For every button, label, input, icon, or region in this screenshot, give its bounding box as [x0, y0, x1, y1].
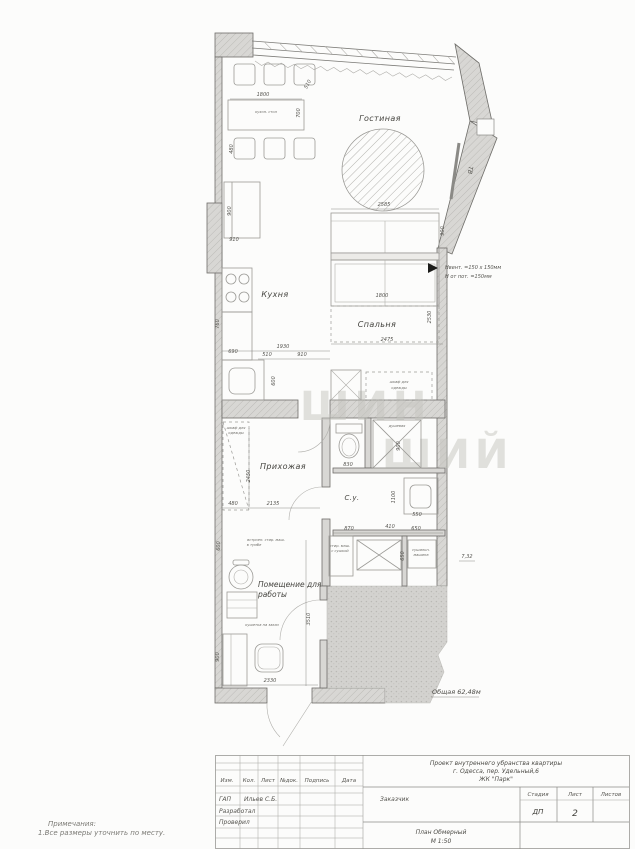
notes-title: Примечания: [48, 820, 96, 828]
svg-text:900: 900 [396, 441, 402, 451]
doc-name-2: М 1:50 [431, 838, 452, 845]
svg-text:1800: 1800 [257, 92, 270, 98]
sheet-value: 2 [572, 809, 578, 819]
wall-top-right-upper [455, 44, 493, 126]
door-arc [280, 600, 320, 640]
customer-label: Заказчик [380, 796, 409, 803]
wall-left-pier [207, 203, 222, 273]
svg-text:Кол.: Кол. [243, 778, 256, 784]
svg-text:760: 760 [215, 319, 221, 329]
workroom-label-2: работы [257, 590, 287, 599]
door-arc [289, 487, 322, 520]
svg-text:410: 410 [385, 524, 395, 530]
svg-text:Изм.: Изм. [221, 778, 234, 784]
svg-text:кушетка на заказ: кушетка на заказ [245, 623, 279, 627]
svg-text:900: 900 [440, 226, 446, 236]
svg-text:480: 480 [228, 501, 238, 507]
vent-arrow-icon [428, 263, 438, 273]
svg-text:650: 650 [411, 526, 421, 532]
svg-text:2330: 2330 [264, 678, 277, 684]
vanity-icon [404, 478, 438, 514]
svg-text:870: 870 [344, 526, 354, 532]
washbasin-icon [410, 485, 431, 508]
svg-text:1930: 1930 [277, 344, 290, 350]
svg-text:830: 830 [343, 462, 353, 468]
dining-table-icon [228, 100, 304, 130]
svg-text:1800: 1800 [376, 293, 389, 299]
round-rug-icon [342, 129, 424, 211]
sheet-label: Лист [567, 792, 583, 798]
doc-name-1: План Обмерный [416, 829, 467, 836]
entry-door-arc [267, 703, 280, 737]
svg-text:сушильн.: сушильн. [412, 548, 430, 552]
bedroom: Спальня [331, 260, 439, 400]
sign-table-rows: ГАПИльев С.Б.РазработалПроверил [219, 796, 277, 826]
wall-top-left [215, 33, 253, 57]
notes-item: 1.Все размеры уточнить по месту. [38, 829, 165, 837]
desk-icon [227, 592, 257, 618]
svg-text:ГАП: ГАП [219, 796, 231, 803]
notes: Примечания: 1.Все размеры уточнить по ме… [38, 820, 165, 837]
svg-text:Ильев С.Б.: Ильев С.Б. [244, 796, 277, 803]
svg-text:с сушкой: с сушкой [331, 549, 349, 553]
sofa-console [331, 253, 439, 260]
svg-text:510: 510 [262, 352, 272, 358]
stool-icon [294, 138, 315, 159]
svg-text:690: 690 [228, 349, 238, 355]
svg-text:в тумбе: в тумбе [247, 543, 262, 547]
svg-text:кухон. стол: кухон. стол [255, 110, 278, 114]
svg-text:машина: машина [413, 553, 428, 557]
svg-text:910: 910 [229, 237, 239, 243]
drawing-sheet: ШИН ШИЙ Гостиная ТВ Спальня Кухня [0, 0, 635, 849]
partition-work-b [320, 640, 327, 688]
stool-icon [264, 138, 285, 159]
svg-text:Дата: Дата [341, 778, 357, 784]
entry-door-leaf [283, 701, 312, 746]
svg-text:600: 600 [216, 541, 222, 551]
svg-text:3510: 3510 [306, 613, 312, 626]
cabinet-icon [223, 634, 247, 686]
project-title-1: Проект внутреннего убранства квартиры [430, 760, 562, 767]
svg-text:встроен. стир. маш.: встроен. стир. маш. [247, 538, 285, 542]
watermark-2: ШИЙ [382, 430, 513, 478]
svg-text:№док.: №док. [279, 778, 298, 784]
svg-text:2475: 2475 [381, 337, 394, 343]
wall-top-right-slant [438, 121, 497, 254]
svg-text:стир. маш.: стир. маш. [330, 544, 350, 548]
svg-text:Подпись: Подпись [305, 778, 330, 784]
wall-mid-left [222, 400, 298, 418]
svg-text:480: 480 [229, 144, 235, 154]
tv-label: ТВ [466, 166, 474, 175]
svg-text:Проверил: Проверил [219, 819, 250, 826]
wall-bottom-left [215, 688, 267, 703]
living-label: Гостиная [359, 114, 401, 123]
window-band [252, 41, 456, 81]
svg-text:шкаф для: шкаф для [227, 426, 247, 430]
floor-plan: ШИН ШИЙ Гостиная ТВ Спальня Кухня [0, 0, 635, 849]
svg-text:2585: 2585 [378, 202, 391, 208]
vent-note-1: Нвент. =150 х 150мм [445, 265, 501, 271]
svg-text:2450: 2450 [246, 470, 252, 483]
vent-note-2: Н от пот. =150мм [445, 274, 492, 280]
chair-icon [229, 565, 253, 589]
sink-icon [229, 368, 255, 394]
cooktop-icon [222, 268, 252, 312]
svg-text:900: 900 [227, 206, 233, 216]
svg-text:2530: 2530 [427, 311, 433, 324]
hall: Прихожая [223, 420, 330, 640]
svg-text:910: 910 [297, 352, 307, 358]
wall-bottom-right [312, 688, 385, 703]
kitchen-label: Кухня [261, 290, 288, 299]
wall-left [215, 57, 222, 688]
svg-text:600: 600 [271, 376, 277, 386]
workroom-label-1: Помещение для [258, 580, 322, 589]
svg-text:Лист: Лист [260, 778, 276, 784]
chair-back-icon [233, 560, 249, 565]
bath-label: С.у. [344, 494, 359, 502]
bath-area-value: 7,32 [461, 554, 472, 560]
svg-text:одежды: одежды [391, 386, 407, 390]
stool-icon [234, 138, 255, 159]
laundry-shelf-icon [329, 536, 353, 576]
stage-label: Стадия [527, 792, 549, 798]
sheets-label: Листов [600, 792, 622, 798]
svg-text:1100: 1100 [391, 491, 397, 504]
svg-text:душевая: душевая [388, 424, 406, 428]
ottoman-icon [255, 644, 283, 672]
project-title-3: ЖК "Парк" [478, 776, 513, 783]
project-title-2: г. Одесса, пер. Удельный,6 [453, 768, 539, 775]
svg-text:650: 650 [400, 551, 406, 561]
bedroom-label: Спальня [358, 320, 396, 329]
stage-value: ДП [532, 808, 544, 816]
svg-text:550: 550 [412, 512, 422, 518]
svg-text:2135: 2135 [267, 501, 280, 507]
stool-icon [264, 64, 285, 85]
svg-text:900: 900 [215, 652, 221, 662]
total-area: Общая 62,48м [432, 688, 481, 696]
title-block: Изм.Кол.Лист№док.ПодписьДата ГАПИльев С.… [215, 755, 630, 849]
svg-text:700: 700 [296, 108, 302, 118]
stool-icon [234, 64, 255, 85]
svg-text:Разработал: Разработал [219, 808, 256, 815]
neighbor-block [327, 586, 447, 703]
svg-text:510: 510 [303, 79, 313, 90]
hall-label: Прихожая [260, 462, 306, 471]
work-room: Помещение для работы [223, 560, 322, 746]
svg-text:одежды: одежды [228, 431, 244, 435]
wall-niche [477, 119, 494, 135]
svg-text:шкаф для: шкаф для [390, 380, 410, 384]
sign-table-header: Изм.Кол.Лист№док.ПодписьДата [221, 778, 357, 784]
